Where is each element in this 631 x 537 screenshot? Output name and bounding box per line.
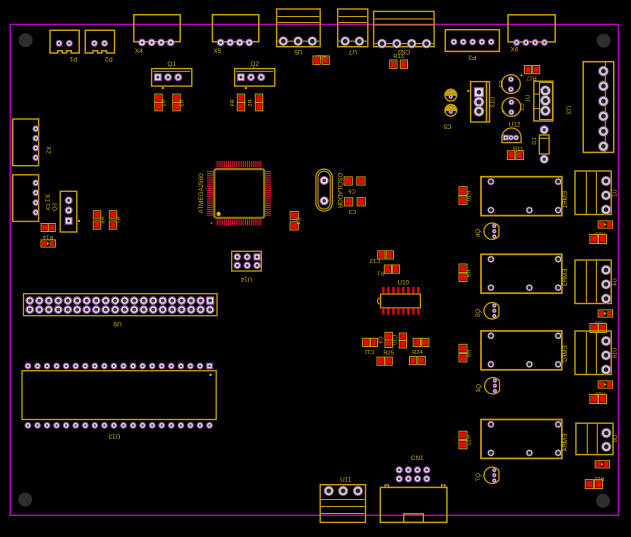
svg-text:+: + xyxy=(519,71,523,80)
svg-text:X1: X1 xyxy=(46,203,52,210)
svg-text:C3: C3 xyxy=(349,208,356,214)
svg-text:D1: D1 xyxy=(532,137,538,144)
svg-text:C9: C9 xyxy=(379,336,385,343)
svg-text:EMR3: EMR3 xyxy=(562,269,569,287)
svg-text:U3: U3 xyxy=(565,106,572,115)
svg-text:R8: R8 xyxy=(467,350,473,357)
svg-text:P3: P3 xyxy=(468,54,476,61)
svg-text:EMR2: EMR2 xyxy=(562,345,569,363)
svg-text:R5: R5 xyxy=(248,99,254,106)
svg-text:R12: R12 xyxy=(467,435,473,446)
svg-text:X2: X2 xyxy=(45,146,52,154)
svg-text:U4: U4 xyxy=(613,278,619,286)
svg-text:EMR4: EMR4 xyxy=(562,434,569,452)
svg-text:C4: C4 xyxy=(297,217,303,225)
svg-text:R6: R6 xyxy=(101,216,107,223)
svg-text:X1: X1 xyxy=(44,194,51,202)
svg-text:X4: X4 xyxy=(135,48,143,55)
svg-text:OSCILADOR: OSCILADOR xyxy=(336,173,342,209)
svg-text:U16: U16 xyxy=(613,348,619,359)
svg-text:R14: R14 xyxy=(43,234,53,240)
svg-text:U5: U5 xyxy=(294,48,303,55)
svg-text:R7: R7 xyxy=(117,216,123,223)
svg-text:C6: C6 xyxy=(348,188,355,194)
svg-text:U1: U1 xyxy=(526,95,532,102)
svg-text:Q1: Q1 xyxy=(167,61,176,68)
svg-text:C2: C2 xyxy=(499,80,505,87)
svg-text:C5: C5 xyxy=(443,123,451,129)
svg-text:P1: P1 xyxy=(69,55,77,62)
svg-text:U11: U11 xyxy=(340,477,352,484)
svg-text:ATMEGA2560: ATMEGA2560 xyxy=(198,173,205,213)
svg-text:R13: R13 xyxy=(393,54,404,60)
svg-text:EMR1: EMR1 xyxy=(562,191,569,209)
svg-text:U10: U10 xyxy=(398,280,410,287)
svg-text:Q3: Q3 xyxy=(53,203,59,211)
svg-text:R24: R24 xyxy=(412,350,423,356)
svg-text:U13: U13 xyxy=(491,97,497,108)
svg-text:C1: C1 xyxy=(520,103,526,110)
svg-text:Q4: Q4 xyxy=(477,384,483,393)
svg-text:U2: U2 xyxy=(613,189,619,196)
svg-text:R2: R2 xyxy=(162,99,168,106)
svg-text:X6: X6 xyxy=(511,47,519,54)
svg-text:Q7: Q7 xyxy=(476,473,482,482)
svg-text:R9: R9 xyxy=(467,269,473,276)
svg-text:U13: U13 xyxy=(108,433,120,440)
svg-text:R25: R25 xyxy=(383,351,394,357)
svg-text:U7: U7 xyxy=(348,48,357,55)
svg-text:U12: U12 xyxy=(509,122,521,129)
svg-text:Q5: Q5 xyxy=(476,309,482,318)
svg-text:CN1: CN1 xyxy=(411,455,424,462)
svg-text:R10: R10 xyxy=(467,191,473,202)
svg-text:C11: C11 xyxy=(365,348,375,354)
svg-text:R1: R1 xyxy=(377,270,384,276)
svg-text:C10: C10 xyxy=(393,335,399,345)
svg-text:U8: U8 xyxy=(613,435,619,442)
svg-text:R3: R3 xyxy=(180,99,186,106)
svg-text:Q2: Q2 xyxy=(250,61,259,68)
svg-text:R4: R4 xyxy=(230,99,236,106)
svg-text:R17: R17 xyxy=(526,75,536,81)
svg-text:X5: X5 xyxy=(213,48,221,55)
svg-text:U9: U9 xyxy=(113,320,122,327)
svg-text:+: + xyxy=(501,107,505,116)
svg-text:P2: P2 xyxy=(104,55,112,62)
svg-text:U14: U14 xyxy=(240,276,252,282)
svg-text:Q6: Q6 xyxy=(476,229,482,238)
